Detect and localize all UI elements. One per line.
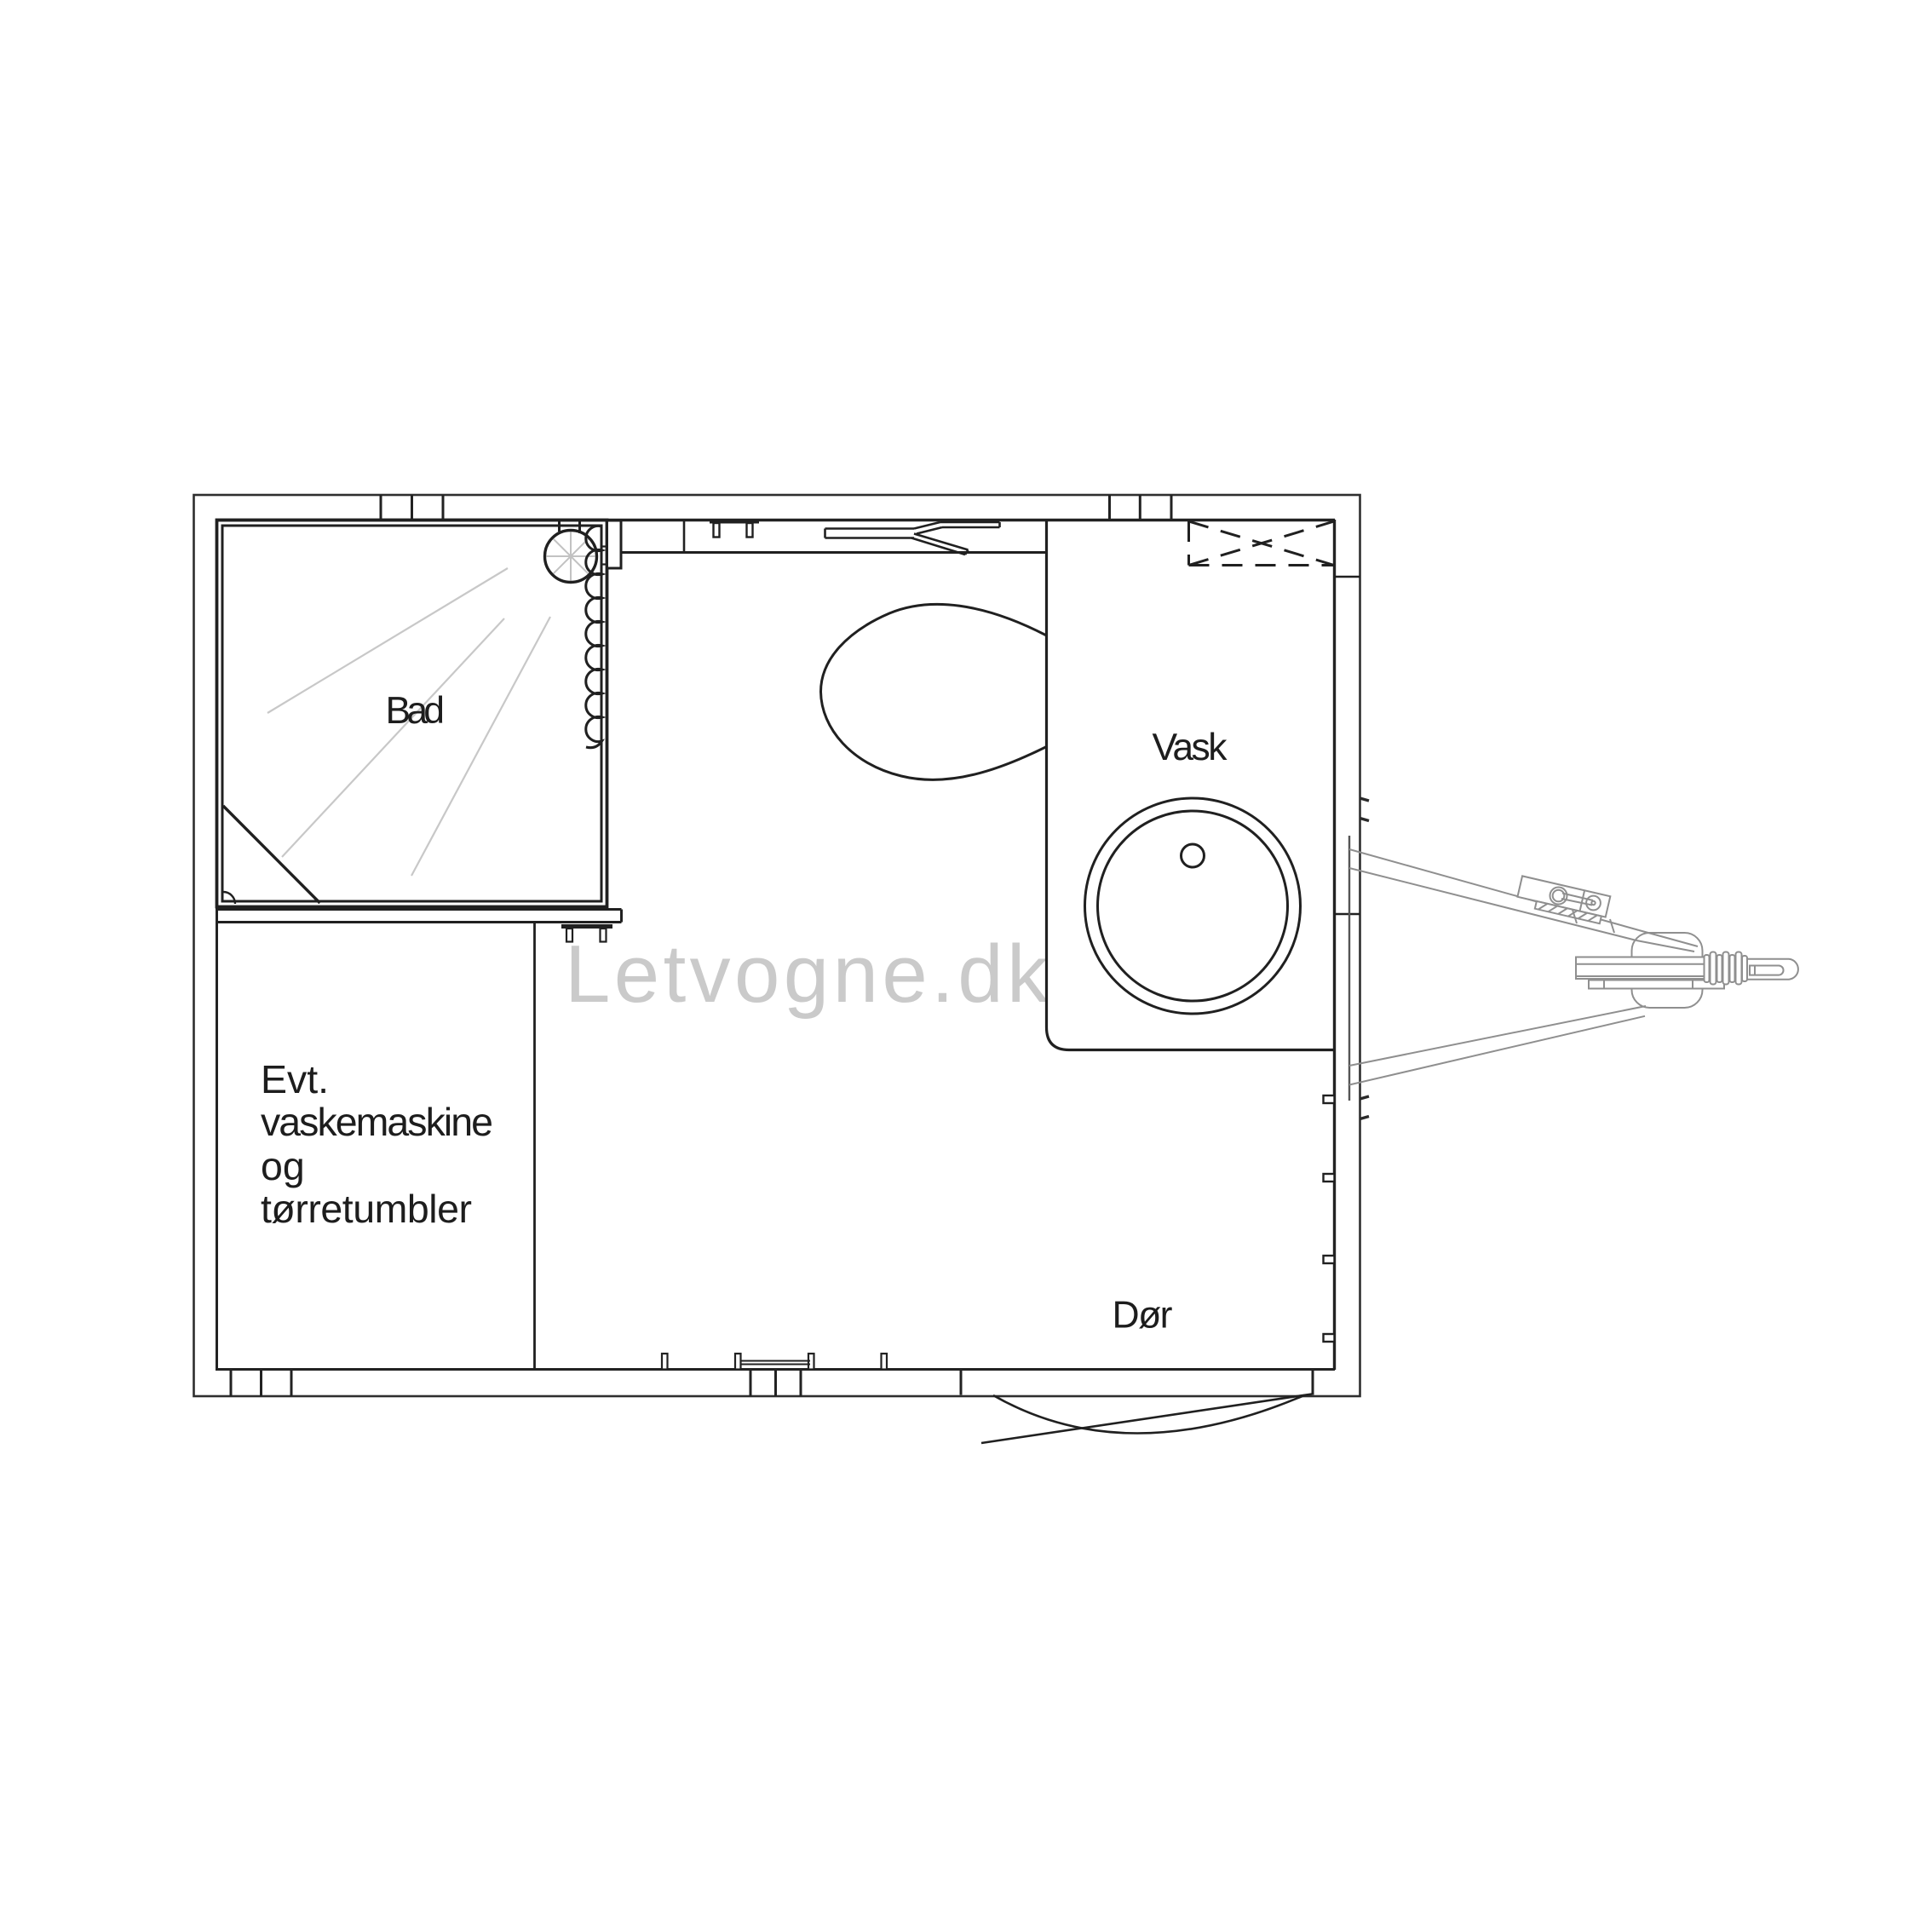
svg-text:Evt.: Evt.: [261, 1057, 329, 1101]
svg-text:vaskemaskine: vaskemaskine: [261, 1100, 493, 1144]
svg-text:Bad: Bad: [386, 690, 446, 732]
svg-text:tørretumbler: tørretumbler: [261, 1187, 472, 1231]
svg-text:Vask: Vask: [1153, 727, 1228, 768]
svg-text:og: og: [261, 1144, 305, 1188]
svg-text:Letvogne.dk: Letvogne.dk: [565, 929, 1049, 1020]
svg-text:Dør: Dør: [1113, 1295, 1173, 1337]
